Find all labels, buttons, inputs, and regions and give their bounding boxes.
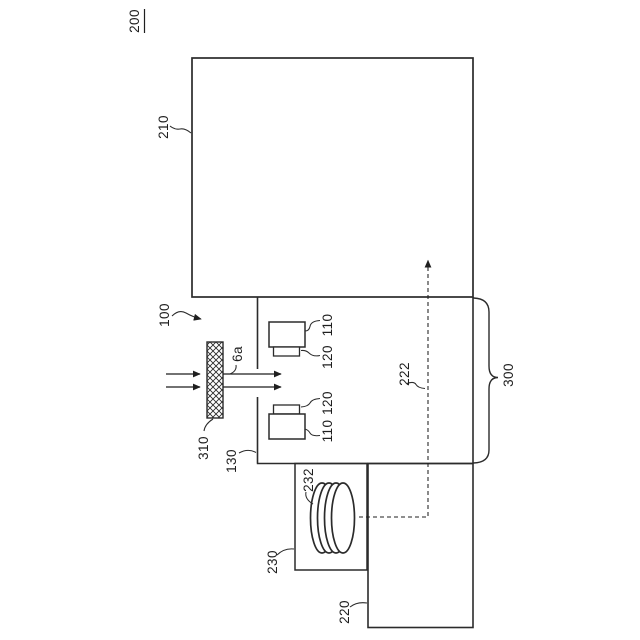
lower-unit-head-120-box bbox=[274, 405, 300, 414]
patent-figure-page: 200 210 100 310 6a 130 110 120 120 110 2… bbox=[0, 0, 640, 640]
label-100: 100 bbox=[157, 303, 172, 327]
label-220: 220 bbox=[337, 600, 352, 624]
coil-232-windings bbox=[311, 483, 355, 553]
lower-unit-body-110-box bbox=[269, 414, 305, 439]
leader-110-lower bbox=[305, 429, 321, 436]
leader-120-lower bbox=[301, 399, 320, 408]
leader-210 bbox=[170, 126, 191, 133]
deposition-units bbox=[269, 322, 305, 439]
label-120-upper: 120 bbox=[320, 345, 335, 369]
label-110-upper: 110 bbox=[320, 314, 335, 337]
leader-310 bbox=[204, 419, 213, 431]
label-222: 222 bbox=[397, 362, 412, 386]
assembly-brace-300 bbox=[474, 298, 499, 463]
label-6a: 6a bbox=[230, 346, 245, 362]
label-210: 210 bbox=[156, 115, 171, 139]
label-300: 300 bbox=[501, 363, 516, 387]
leader-6a bbox=[230, 365, 236, 374]
label-230: 230 bbox=[265, 550, 280, 574]
label-130: 130 bbox=[224, 449, 239, 473]
label-110-lower: 110 bbox=[320, 420, 335, 443]
upper-unit-head-120-box bbox=[274, 347, 300, 356]
label-120-lower: 120 bbox=[320, 391, 335, 415]
leader-110-upper bbox=[305, 321, 320, 332]
upper-unit-body-110-box bbox=[269, 322, 305, 347]
figure-number: 200 bbox=[127, 9, 142, 33]
flow-path-222-dashed bbox=[359, 261, 428, 518]
leader-220 bbox=[350, 603, 367, 607]
pointer-arrow-100 bbox=[172, 312, 201, 319]
coil-loop-4 bbox=[332, 483, 355, 553]
label-310: 310 bbox=[196, 436, 211, 460]
leader-130 bbox=[239, 450, 256, 453]
filter-plate-310-hatched bbox=[207, 342, 223, 418]
label-232: 232 bbox=[301, 468, 316, 492]
leader-120-upper bbox=[301, 350, 320, 355]
patent-figure: 200 210 100 310 6a 130 110 120 120 110 2… bbox=[0, 0, 640, 640]
pump-unit-220-outline bbox=[368, 464, 473, 628]
upper-chamber-210-outline bbox=[192, 58, 473, 297]
